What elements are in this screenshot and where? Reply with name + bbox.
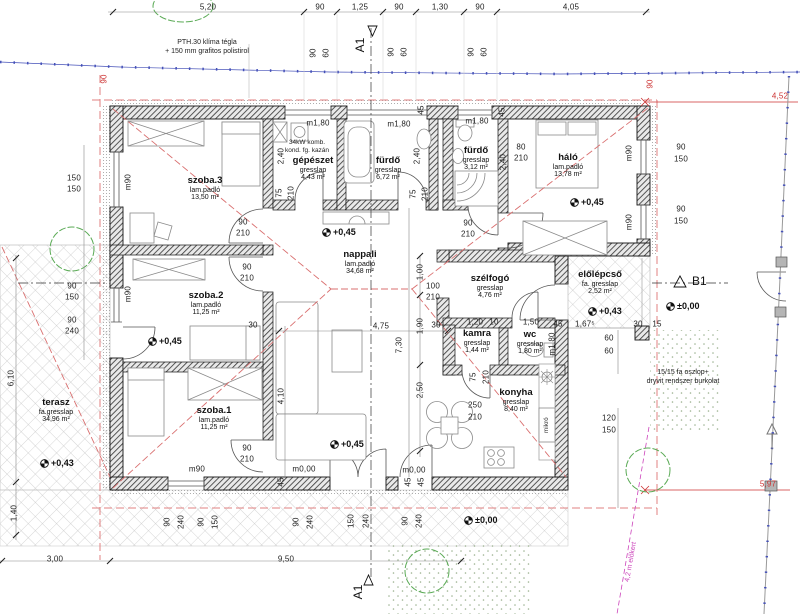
level-marker: +0,43 [588,306,622,316]
dim-label: 210 [468,413,482,422]
room-label: hálólam.padló13,78 m² [553,153,583,179]
dim-label: 240 [362,514,371,528]
room-label: wcgresslap1,80 m² [517,330,543,356]
room-area: 4,43 m² [293,174,334,182]
dim-label: 90 [292,517,301,526]
room-label: szélfogógresslap4,76 m² [471,274,510,300]
dim-label: 150 [674,217,688,226]
room-material: fa. gresslap [578,281,622,289]
room-label: fürdőgresslap6,72 m² [375,156,401,182]
room-area: 6,72 m² [375,174,401,182]
room-name: fürdő [375,156,401,167]
dim-label: 90 [401,516,410,525]
fence-line [764,76,789,614]
dim-label: 45 [417,477,426,486]
dim-label: 90 [475,3,484,12]
dim-label: m0,00 [292,465,315,474]
level-marker: ±0,00 [666,301,699,311]
dim-label: 7,30 [395,337,404,353]
level-marker: +0,45 [322,227,356,237]
level-marker: +0,43 [40,458,74,468]
room-name: szoba.3 [188,176,223,187]
section-marker-a1-top: A1 [353,38,367,53]
room-material: gresslap [375,167,401,175]
dim-label: 60 [400,47,409,56]
dim-label: mikró [544,417,550,433]
dim-label: 90 [238,218,247,227]
level-value: +0,43 [599,306,622,316]
dim-label: 90 [197,517,206,526]
dim-label: 45 [277,477,286,486]
dim-label: 240 [306,515,315,529]
dim-label: 60 [604,347,613,356]
dim-label: 15 [652,320,661,329]
dim-label: 30 [431,321,440,330]
room-area: 3,12 m² [463,164,489,172]
dim-label: 90 [100,74,109,83]
dim-label: 210 [240,274,254,283]
dim-label: 75 [275,188,284,197]
dim-label: 4,75 [373,322,389,331]
room-material: lam.padló [188,187,223,195]
room-material: fa.gresslap [39,409,73,417]
level-symbol-icon [570,198,579,207]
dim-label: 250 [468,401,482,410]
dim-label: m1,80 [548,332,557,355]
room-name: szoba.1 [197,406,232,417]
dim-label: 210 [482,370,491,384]
room-area: 11,25 m² [189,309,224,317]
room-area: 34,96 m² [39,416,73,424]
dim-label: 1,50 [523,318,539,327]
dim-label: 30 [633,320,642,329]
level-marker: +0,45 [570,197,604,207]
room-name: nappali [343,250,376,261]
dim-label: 210 [514,154,528,163]
level-marker: +0,45 [330,439,364,449]
dim-label: 100 [426,282,440,291]
room-name: szoba.2 [189,291,224,302]
dim-label: m1,80 [387,120,410,129]
dim-label: 150 [602,426,616,435]
dim-label: 2,50 [416,382,425,398]
room-label: előlépcsőfa. gresslap2,52 m² [578,270,622,296]
dim-label: 45 [404,477,413,486]
room-name: konyha [499,388,532,399]
dim-label: 1,20 [467,318,483,327]
dim-label: 60 [604,334,613,343]
dim-label: m1,80 [465,117,488,126]
dim-label: 75 [409,189,418,198]
dim-label: 90 [676,205,685,214]
dim-label: 1,90 [416,318,425,334]
dim-label: 150 [211,515,220,529]
room-area: 13,50 m² [188,194,223,202]
dim-label: 150 [674,155,688,164]
level-symbol-icon [40,459,49,468]
room-material: gresslap [463,340,491,348]
dim-label: 240 [177,515,186,529]
dim-label: 150 [67,174,81,183]
level-symbol-icon [588,307,597,316]
dim-label: 240 [415,514,424,528]
utility-line-blue [0,62,800,74]
room-material: lam.padló [189,302,224,310]
dim-label: m90 [625,145,634,161]
dim-label: 75 [469,372,478,381]
dim-label: 4,10 [277,388,286,404]
dim-label: 90 [242,444,251,453]
front-garden-line [617,427,649,614]
dim-label: 60 [322,48,331,57]
level-symbol-icon [666,302,675,311]
dim-label: 1,00 [416,264,425,280]
room-area: 11,25 m² [197,424,232,432]
terrace-hatch [0,245,110,490]
note-annotation: 34kW komb.kond. fg. kazán [285,139,329,156]
dim-label: 90 [467,47,476,56]
level-marker: ±0,00 [464,515,497,525]
dim-label: 3,00 [47,555,63,564]
dim-label: 210 [426,293,440,302]
dim-label: 90 [676,143,685,152]
level-value: +0,43 [51,458,74,468]
level-value: ±0,00 [475,515,497,525]
dim-label: m90 [124,286,133,302]
room-label: szoba.2lam.padló11,25 m² [189,291,224,317]
dim-label: 90 [394,3,403,12]
level-value: +0,45 [581,197,604,207]
dim-label: 90 [463,219,472,228]
dim-label: 90 [67,282,76,291]
dim-label: 6,10 [7,370,16,386]
room-label: kamragresslap1,44 m² [463,329,491,355]
level-symbol-icon [148,337,157,346]
dim-label: 2,40 [499,154,508,170]
dim-label: 150 [67,185,81,194]
room-label: teraszfa.gresslap34,96 m² [39,398,73,424]
level-symbol-icon [464,516,473,525]
dim-label: 60 [480,47,489,56]
room-area: 8,40 m² [499,406,532,414]
section-marker-b1: B1 [692,274,707,288]
dim-label: m90 [625,214,634,230]
dim-label: 210 [287,186,296,200]
dim-label: 90 [242,263,251,272]
room-area: 2,52 m² [578,288,622,296]
boundary-red-dims [641,98,798,494]
room-name: fürdő [463,146,489,157]
dim-label: 1,40 [10,505,19,521]
dim-label: 45 [417,105,426,114]
room-label: nappalilam.padló34,68 m² [343,250,376,276]
room-name: wc [517,330,543,341]
room-material: gresslap [293,167,334,175]
room-name: gépészet [293,156,334,167]
dim-label: m90 [189,465,205,474]
note-annotation: 15/15 fa oszlop+dryvit rendszer burkolat [647,368,720,386]
dim-label: 1,25 [352,3,368,12]
dim-label: 210 [236,229,250,238]
dim-label: 10 [489,318,498,327]
dim-label: 150 [347,514,356,528]
room-label: konyhagresslap8,40 m² [499,388,532,414]
room-area: 1,44 m² [463,347,491,355]
room-name: terasz [39,398,73,409]
dim-label: 4,05 [563,3,579,12]
dim-label: 90 [163,517,172,526]
room-area: 13,78 m² [553,171,583,179]
dim-label: 90 [387,47,396,56]
room-material: lam.padló [197,417,232,425]
dim-label: m0,00 [402,466,425,475]
room-area: 4,76 m² [471,292,510,300]
level-symbol-icon [330,440,339,449]
dim-label: 90 [309,48,318,57]
dim-label: 9,50 [278,555,294,564]
room-material: lam.padló [553,164,583,172]
dim-label: 45 [498,107,507,116]
floor-plan-canvas: A1 A1 B1 szoba.3lam.padló13,50 m²gépésze… [0,0,800,614]
dim-label: 2,40 [413,148,422,164]
dim-label: 5,20 [200,3,216,12]
level-value: ±0,00 [677,301,699,311]
dim-label: 4,52 [772,92,788,101]
room-material: lam.padló [343,261,376,269]
dim-label: 1,30 [432,3,448,12]
room-material: gresslap [517,341,543,349]
room-label: fürdőgresslap3,12 m² [463,146,489,172]
room-label: szoba.3lam.padló13,50 m² [188,176,223,202]
dim-label: 30 [248,321,257,330]
dim-label: 1,67⁵ [575,320,595,329]
dim-label: 210 [461,230,475,239]
dim-label: 210 [240,455,254,464]
room-area: 34,68 m² [343,268,376,276]
section-marker-a1-bottom: A1 [351,585,365,600]
room-name: kamra [463,329,491,340]
note-annotation: PTH.30 klíma tégla+ 150 mm grafitos poli… [165,38,249,56]
room-label: gépészetgresslap4,43 m² [293,156,334,182]
dim-label: 150 [65,293,79,302]
level-marker: +0,45 [148,336,182,346]
level-symbol-icon [322,228,331,237]
dim-label: 240 [65,327,79,336]
level-value: +0,45 [341,439,364,449]
dim-label: 5,97 [760,480,776,489]
dim-label: m90 [124,174,133,190]
room-name: szélfogó [471,274,510,285]
dim-label: 90 [646,79,655,88]
room-name: előlépcső [578,270,622,281]
dim-label: 120 [602,414,616,423]
dim-label: 210 [421,187,430,201]
dim-label: 90 [315,3,324,12]
dim-label: 90 [67,316,76,325]
level-value: +0,45 [333,227,356,237]
dim-label: 45 [553,320,562,329]
room-material: gresslap [463,157,489,165]
level-value: +0,45 [159,336,182,346]
room-material: gresslap [499,399,532,407]
room-name: háló [553,153,583,164]
dim-label: 80 [516,143,525,152]
room-area: 1,80 m² [517,348,543,356]
room-label: szoba.1lam.padló11,25 m² [197,406,232,432]
room-material: gresslap [471,285,510,293]
dim-label: m1,80 [306,119,329,128]
north-arrow-icon [767,424,777,450]
